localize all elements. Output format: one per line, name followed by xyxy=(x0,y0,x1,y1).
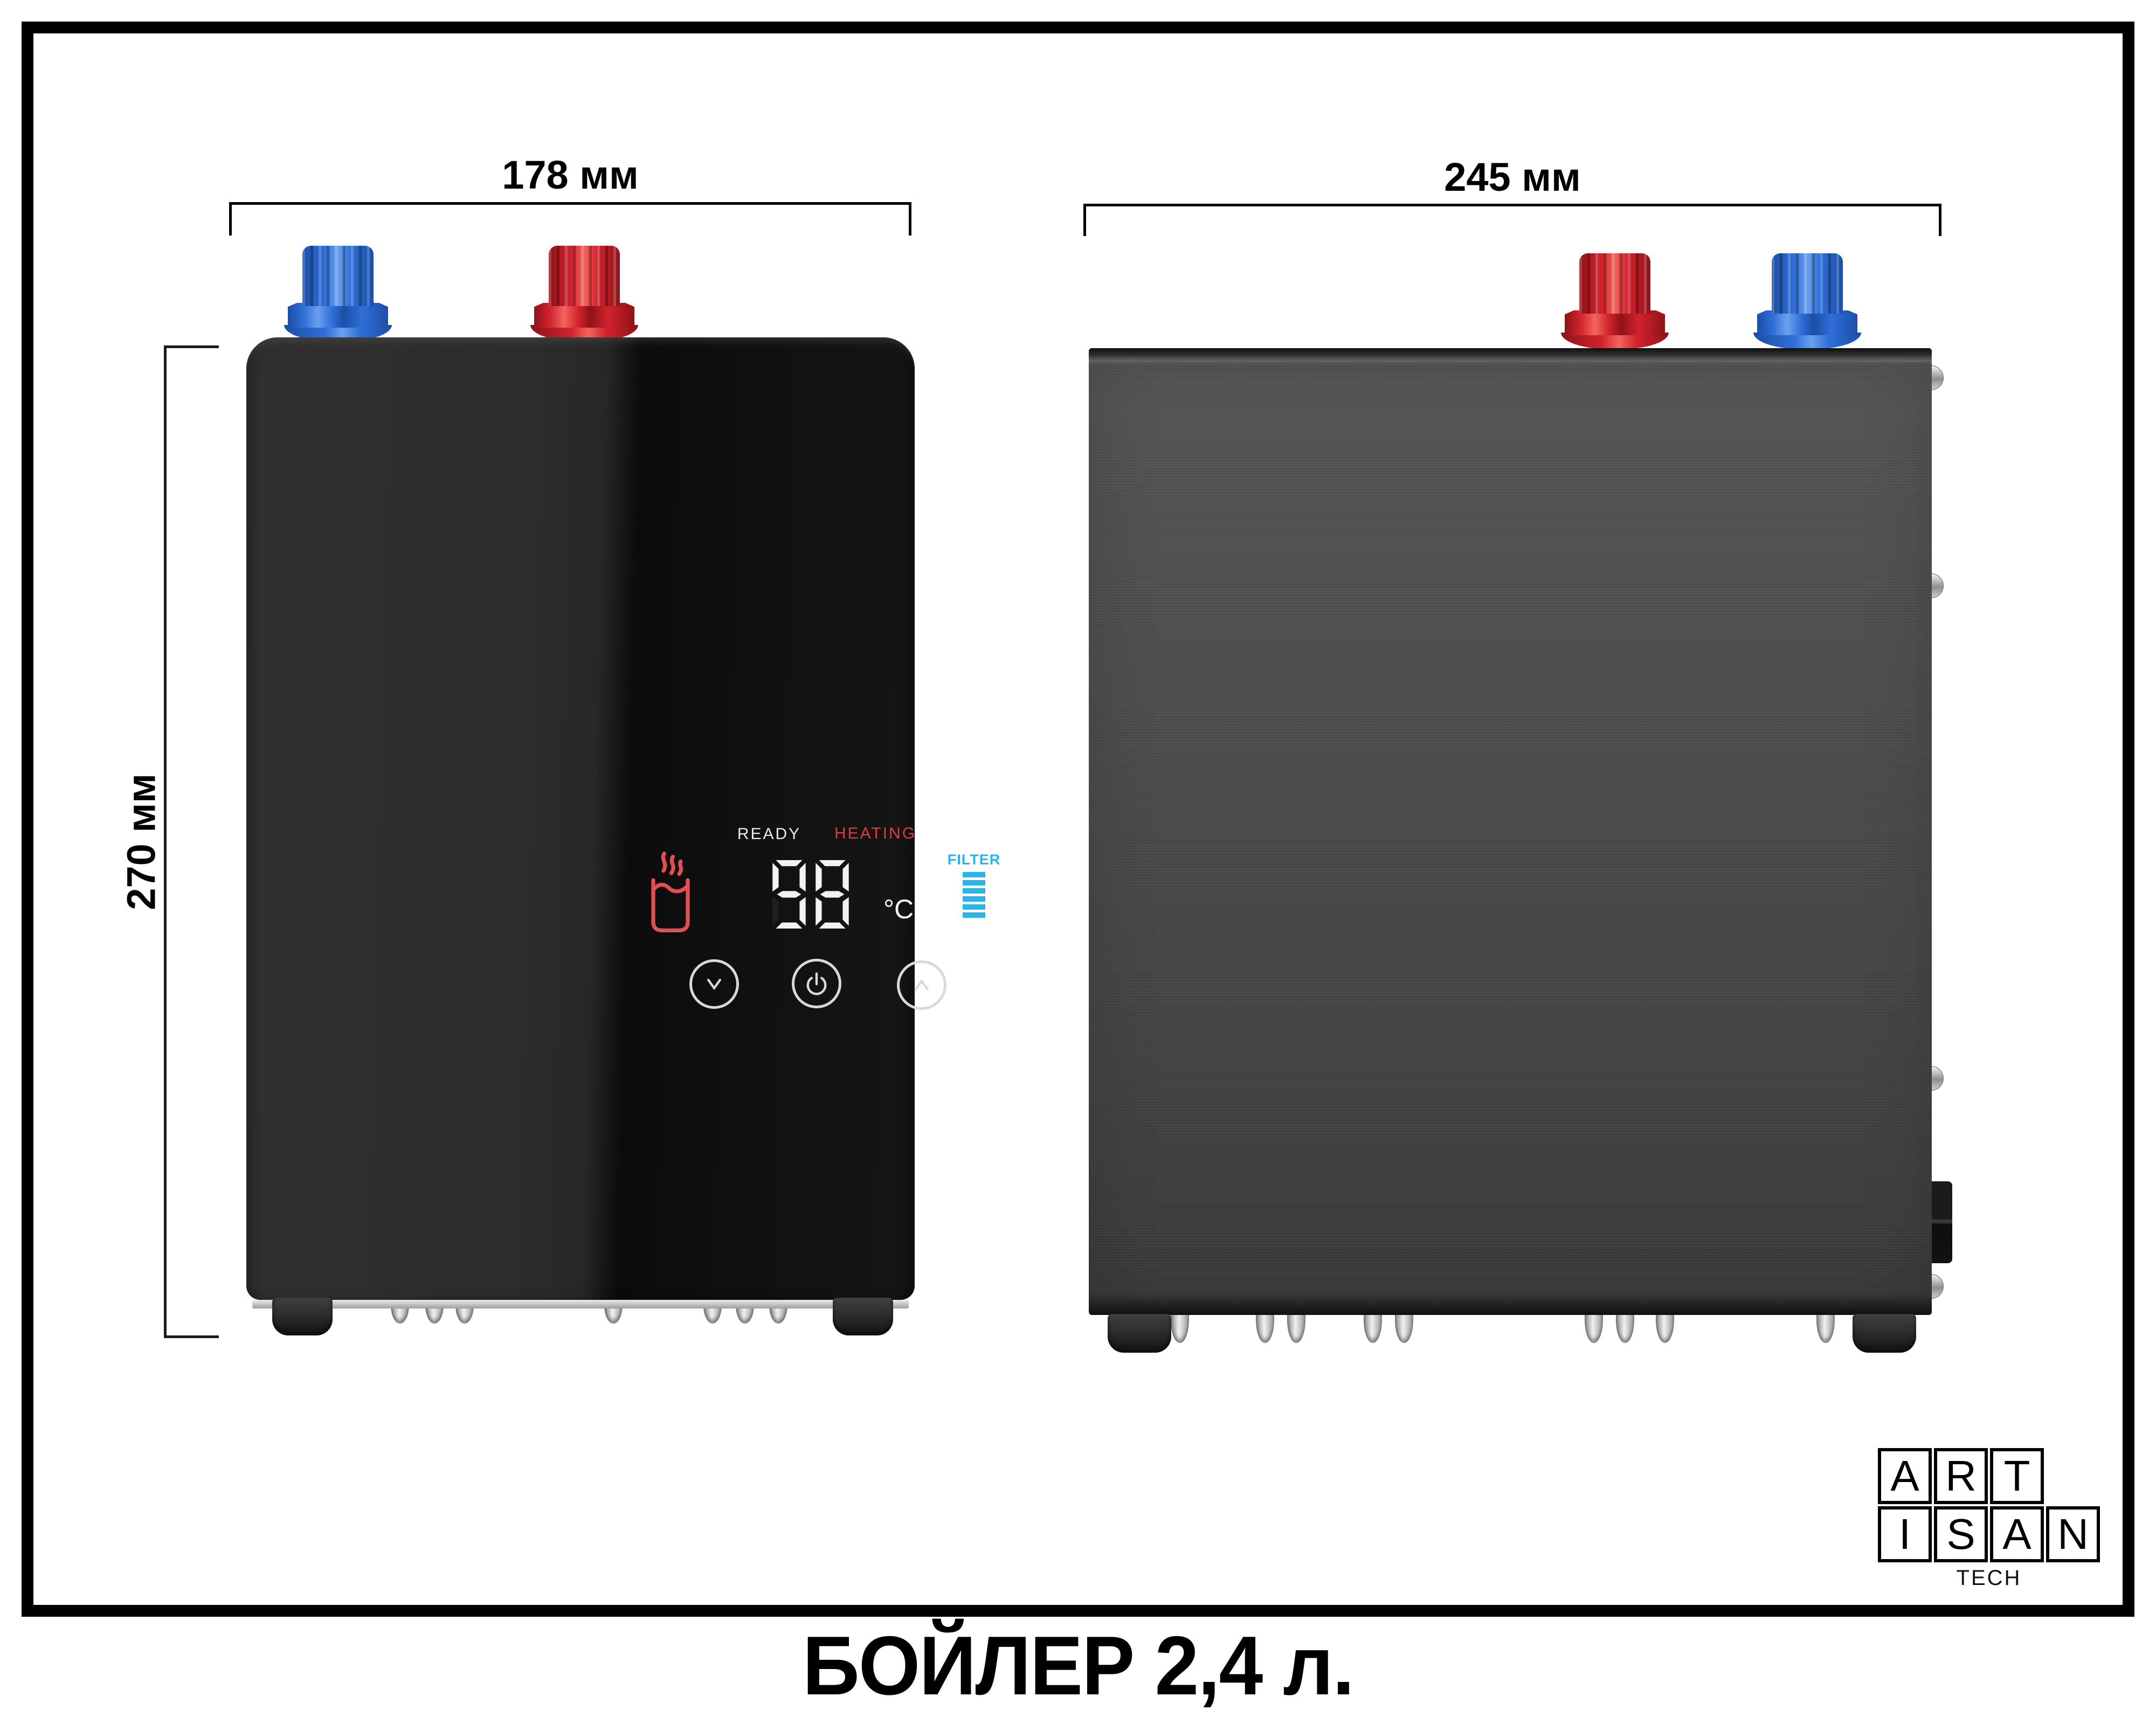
front-base-strip xyxy=(252,1300,909,1308)
logo-letter-box: S xyxy=(1934,1506,1988,1562)
logo-letter-box: A xyxy=(1878,1448,1932,1504)
dimension-tick xyxy=(164,1335,219,1338)
front-right-foot xyxy=(833,1298,893,1335)
ready-status-label: READY xyxy=(715,825,823,843)
filter-bar xyxy=(963,880,985,885)
filter-level-gauge xyxy=(963,872,985,920)
power-socket xyxy=(1930,1181,1952,1263)
dimension-tick xyxy=(1939,204,1941,236)
connector-nut xyxy=(534,303,634,328)
side-left-foot xyxy=(1108,1314,1171,1353)
hot-water-connector xyxy=(530,246,638,342)
dimension-tick xyxy=(229,202,232,236)
artisan-logo: ARTISAN xyxy=(1878,1448,2100,1564)
side-bottom-bevel xyxy=(1089,1293,1932,1315)
front-height-label: 270 мм xyxy=(119,773,164,910)
side-top-bevel xyxy=(1089,348,1932,364)
connector-nut xyxy=(1565,310,1665,335)
connector-cap xyxy=(1579,253,1650,314)
hot-cup-icon xyxy=(646,850,695,937)
logo-letter-box: T xyxy=(1990,1448,2044,1504)
temperature-display xyxy=(772,860,849,929)
connector-cap xyxy=(302,246,374,306)
connector-nut xyxy=(1757,310,1857,335)
logo-letter-box: I xyxy=(1878,1506,1932,1562)
front-left-foot xyxy=(272,1298,333,1335)
filter-bar xyxy=(963,896,985,902)
logo-row: ART xyxy=(1878,1448,2100,1504)
boiler-side-panel xyxy=(1089,348,1932,1315)
front-width-dimension-line xyxy=(229,202,911,205)
boiler-spec-sheet: 178 мм 270 мм READY HEATING xyxy=(0,0,2156,1724)
logo-letter-box: A xyxy=(1990,1506,2044,1562)
filter-bar xyxy=(963,912,985,918)
filter-bar xyxy=(963,872,985,877)
front-height-dimension-line xyxy=(164,345,167,1338)
cold-water-connector-side xyxy=(1753,253,1861,349)
artisan-logo-subtitle: TECH xyxy=(1919,1566,2059,1590)
dimension-tick xyxy=(909,202,911,236)
filter-bar xyxy=(963,904,985,910)
side-width-label: 245 мм xyxy=(1083,154,1941,200)
filter-bar xyxy=(963,888,985,894)
logo-row: ISAN xyxy=(1878,1506,2100,1562)
page-title: БОЙЛЕР 2,4 л. xyxy=(54,1618,2102,1714)
dimension-tick xyxy=(1083,204,1086,236)
boiler-front-panel: READY HEATING °C FILTER xyxy=(246,337,915,1300)
dimension-tick xyxy=(164,345,219,348)
connector-cap xyxy=(1772,253,1843,314)
chevron-down-icon xyxy=(700,970,728,998)
temperature-up-button xyxy=(897,960,946,1010)
power-button xyxy=(792,959,841,1008)
temperature-unit: °C xyxy=(883,894,914,925)
temperature-down-button xyxy=(689,959,739,1009)
connector-nut xyxy=(288,303,388,328)
hot-water-connector-side xyxy=(1561,253,1669,349)
heating-status-label: HEATING xyxy=(821,825,929,843)
logo-letter-box: R xyxy=(1934,1448,1988,1504)
logo-letter-box: N xyxy=(2046,1506,2100,1562)
side-right-foot xyxy=(1853,1314,1916,1353)
chevron-up-icon xyxy=(908,971,936,999)
side-width-dimension-line xyxy=(1083,204,1941,206)
connector-cap xyxy=(549,246,620,306)
power-icon xyxy=(803,970,831,998)
front-width-label: 178 мм xyxy=(229,152,911,198)
filter-label: FILTER xyxy=(936,851,1012,868)
cold-water-connector xyxy=(284,246,392,342)
